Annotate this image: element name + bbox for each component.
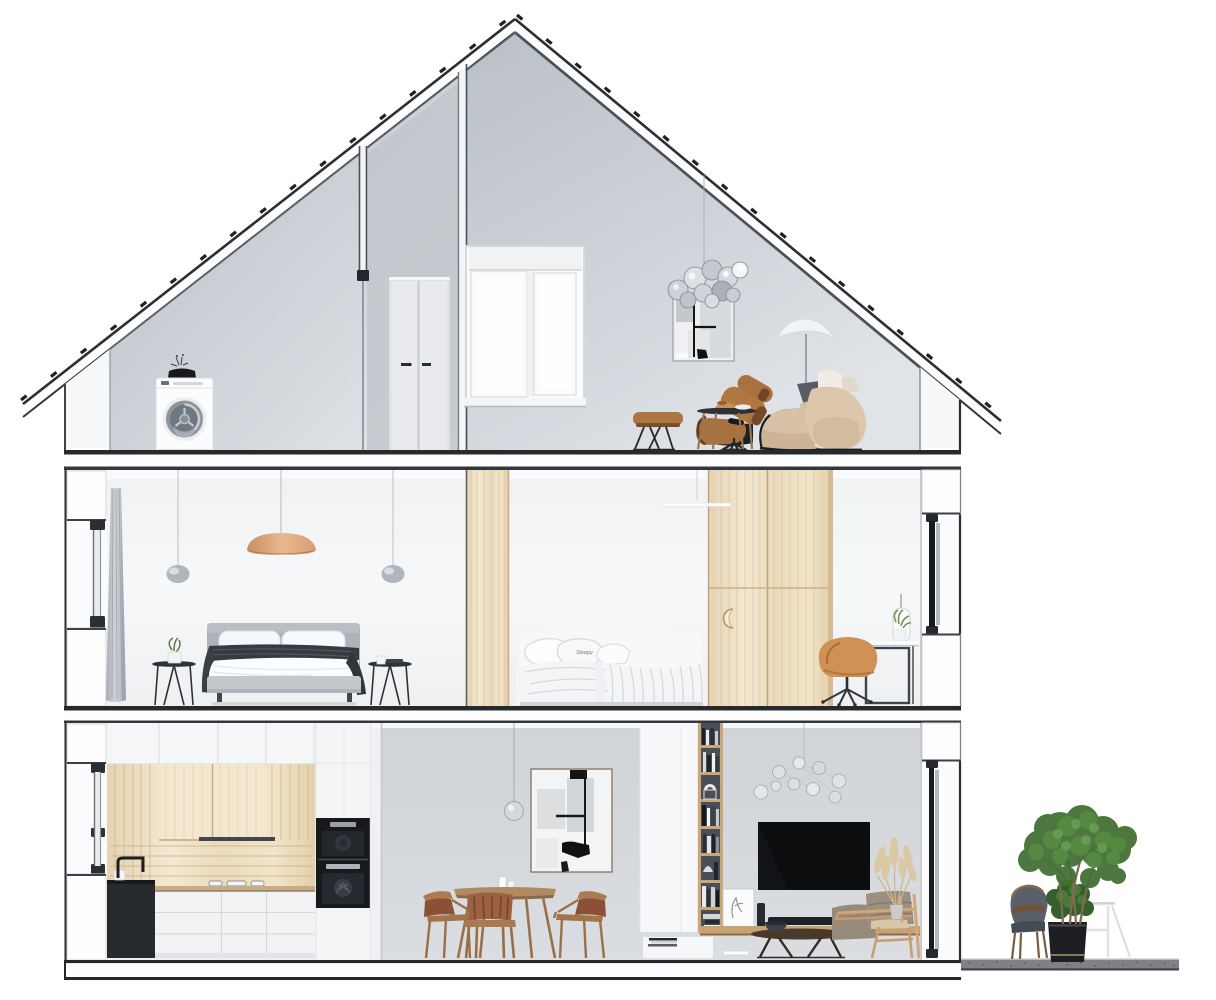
svg-text:Sleepy: Sleepy <box>576 650 594 656</box>
